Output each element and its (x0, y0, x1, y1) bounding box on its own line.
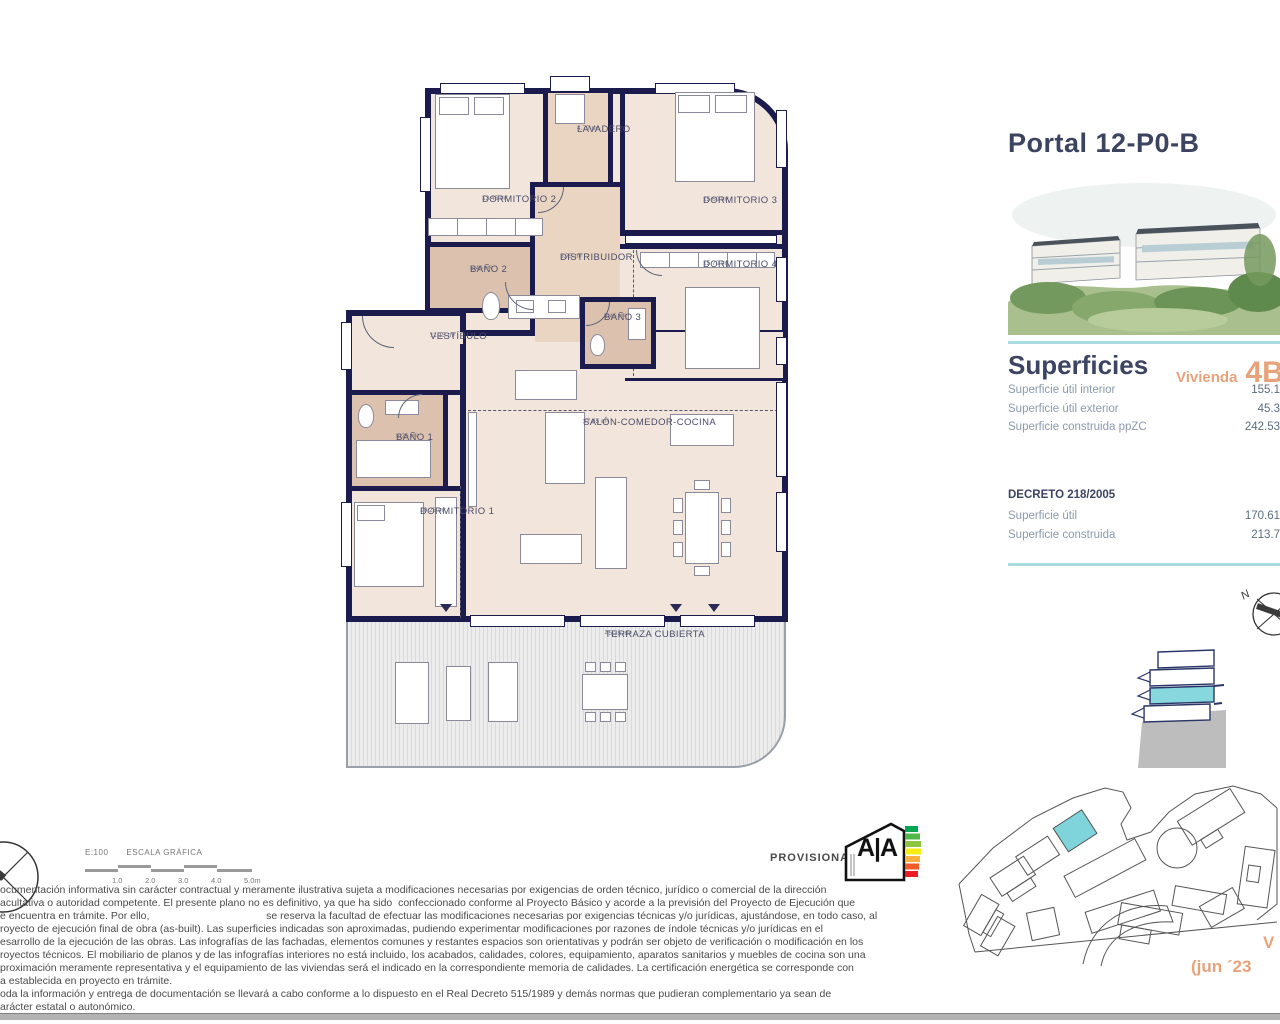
building-section-diagram (1128, 644, 1228, 768)
chair (694, 480, 710, 490)
bed (685, 287, 760, 369)
wall (346, 486, 466, 491)
window (440, 83, 525, 94)
pillow (678, 95, 710, 113)
bathtub (356, 440, 431, 478)
sun-lounger (446, 666, 471, 721)
wall (543, 88, 548, 185)
floor-plan: DORMITORIO 213.45 m² LAVADERO4.70 m² DOR… (340, 82, 790, 774)
wall (620, 244, 782, 249)
chair (600, 712, 611, 722)
chair (585, 712, 596, 722)
window (776, 382, 787, 477)
terrace-slider (680, 615, 755, 627)
pillow (357, 505, 385, 521)
toilet (590, 334, 605, 356)
bottom-bar (0, 1013, 1280, 1020)
entrance-arrow (440, 604, 452, 612)
sofa (515, 370, 577, 400)
window (341, 322, 352, 370)
window (420, 117, 431, 192)
wall (620, 88, 625, 236)
page-title: Portal 12-P0-B (1008, 128, 1200, 159)
pillow (474, 97, 504, 115)
entrance-arrow (708, 604, 720, 612)
tv-unit (468, 412, 477, 507)
wall (608, 88, 613, 185)
scale-bar: E:100ESCALA GRÁFICA 1.0 2.0 3.0 4.0 5.0m (85, 848, 285, 885)
sun-lounger (488, 662, 518, 722)
chair (600, 662, 611, 672)
wall (425, 242, 535, 247)
sun-lounger (395, 662, 429, 724)
window (625, 235, 777, 244)
toilet (482, 292, 500, 320)
wardrobe (428, 218, 543, 236)
divider-line (1008, 563, 1280, 566)
sofa (520, 534, 582, 564)
energy-rating-letters: A|A (857, 834, 897, 863)
scale-graphic (85, 865, 252, 873)
toilet (358, 404, 374, 428)
chair (673, 498, 683, 513)
surface-row: Superficie útil exterior45.3 (1008, 403, 1280, 422)
window (776, 337, 787, 365)
window (341, 502, 352, 567)
decreto-title: DECRETO 218/2005 (1008, 489, 1115, 501)
surface-row: Superficie construida213.7 (1008, 529, 1280, 548)
chair (721, 498, 731, 513)
terrace-table (582, 674, 628, 710)
surface-row: Superficie útil170.61 (1008, 510, 1280, 529)
surface-row: Superficie útil interior155.1 (1008, 384, 1280, 403)
window (776, 257, 787, 302)
divider-line (1008, 341, 1280, 344)
wall (346, 390, 466, 395)
entrance-arrow (670, 604, 682, 612)
scale-ratio: E:100 (85, 848, 108, 857)
version-line1: V (1263, 933, 1274, 953)
chair (721, 542, 731, 557)
terrace-slider (470, 615, 565, 627)
window (776, 110, 787, 168)
window (776, 492, 787, 552)
sink (548, 300, 566, 313)
dining-table (685, 492, 719, 564)
chair (673, 542, 683, 557)
pillow (439, 97, 469, 115)
chair (615, 712, 626, 722)
window (550, 76, 590, 92)
svg-text:N: N (1239, 588, 1252, 602)
version-line2: (jun ´23 (1191, 957, 1251, 977)
terrace-slider (580, 615, 665, 627)
armchair (545, 412, 585, 484)
pillow (715, 95, 747, 113)
surface-row: Superficie construida ppZC242.53 (1008, 421, 1280, 440)
legal-disclaimer: ocumentación informativa sin carácter co… (0, 884, 950, 1014)
washing-machine (555, 94, 585, 124)
chair (615, 662, 626, 672)
wall (443, 390, 448, 490)
chair (721, 520, 731, 535)
chair (673, 520, 683, 535)
scale-label: ESCALA GRÁFICA (126, 848, 202, 857)
north-compass-icon: N (1240, 584, 1280, 644)
chair (585, 662, 596, 672)
building-illustration (1008, 170, 1280, 335)
superficies-title: Superficies (1008, 350, 1148, 381)
chair (694, 566, 710, 576)
rug (595, 477, 627, 569)
dashed-line (468, 410, 778, 411)
